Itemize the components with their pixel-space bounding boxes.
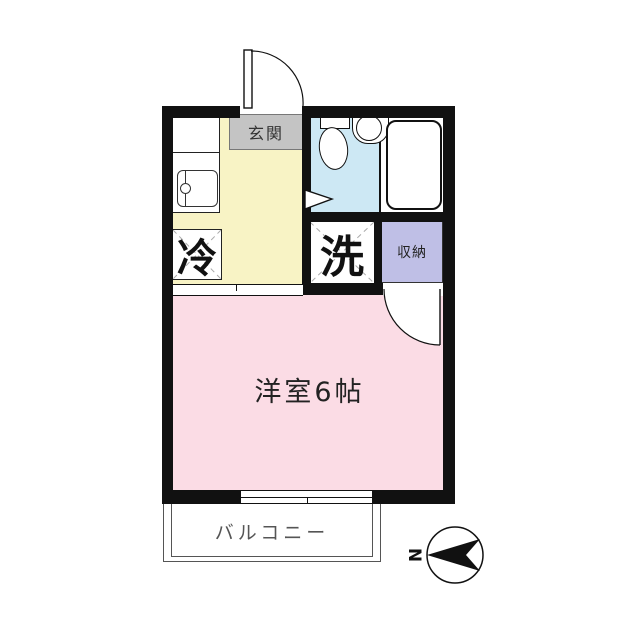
- floorplan-canvas: 収納 玄関 冷 洗: [0, 0, 640, 640]
- doors-overlay: [0, 0, 640, 640]
- entrance-door-arc-icon: [251, 51, 303, 106]
- entrance-door-leaf: [244, 50, 252, 108]
- bathroom-door-icon: [305, 190, 332, 209]
- room-door-swing-area: [384, 289, 440, 345]
